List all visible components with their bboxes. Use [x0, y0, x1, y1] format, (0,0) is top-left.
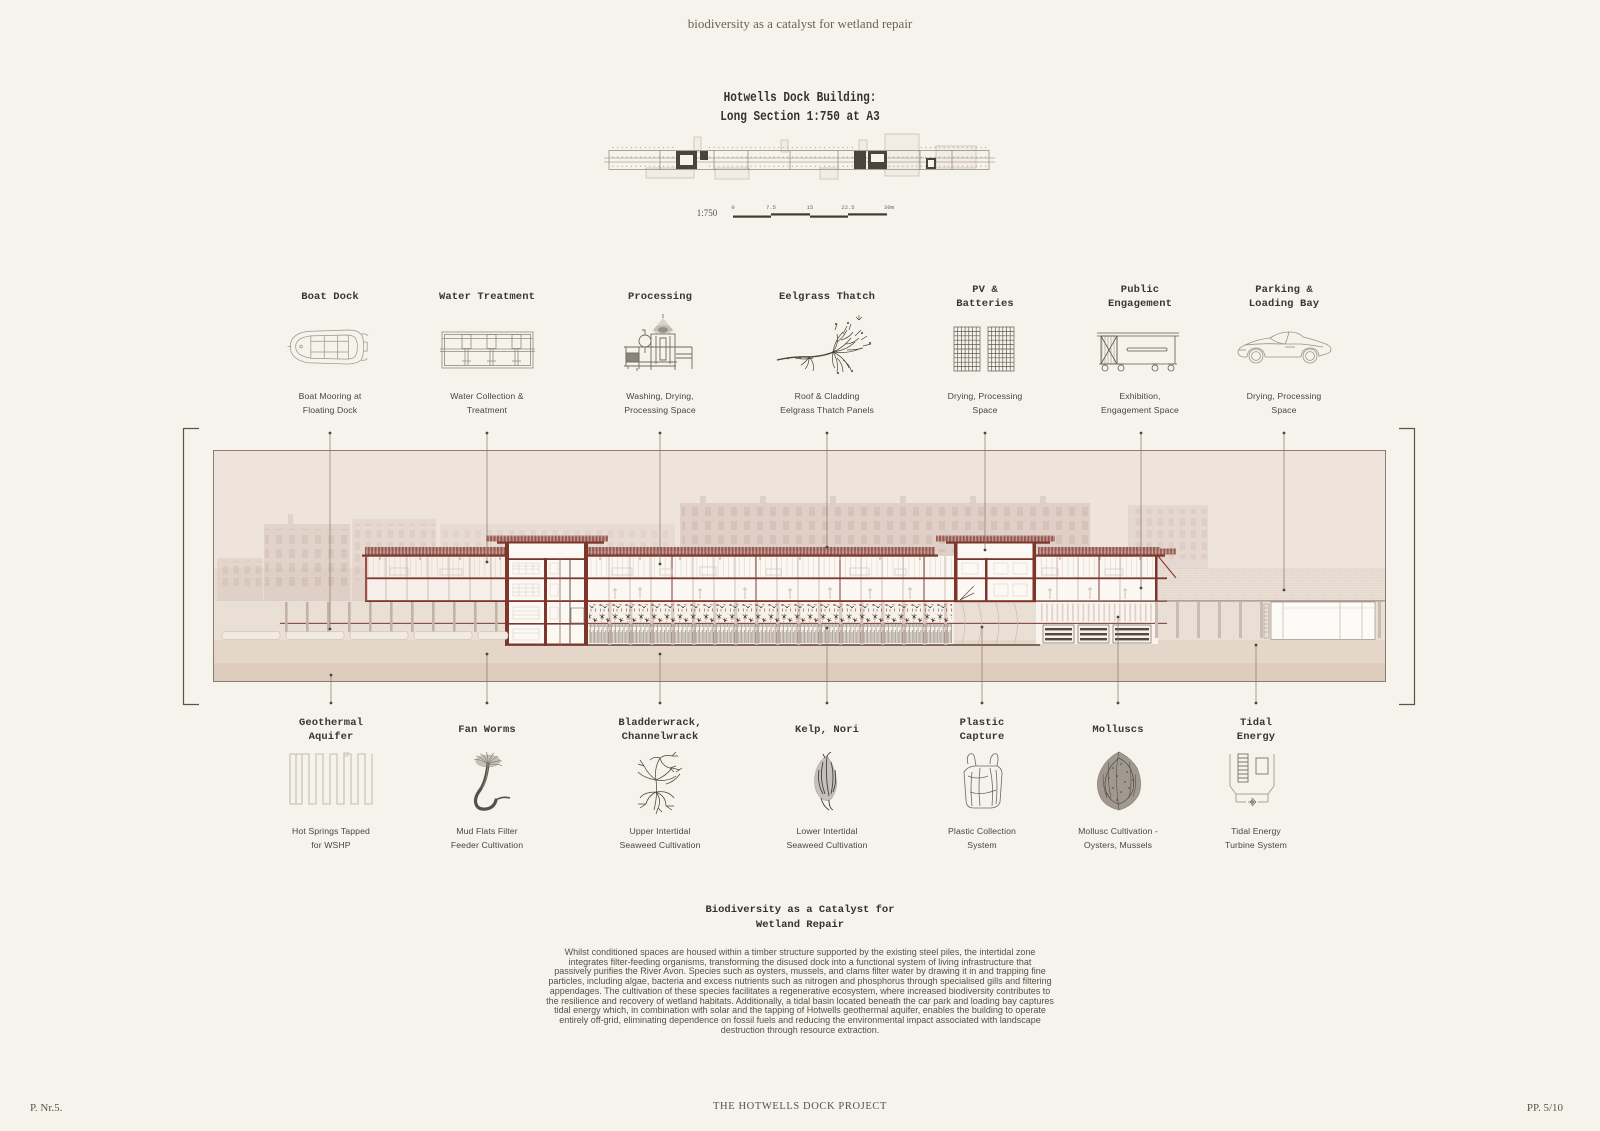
svg-text:7.5: 7.5	[766, 204, 776, 211]
svg-text:0: 0	[731, 204, 734, 211]
svg-text:22.5: 22.5	[841, 204, 854, 211]
svg-text:1:750: 1:750	[697, 208, 718, 218]
svg-text:30m: 30m	[884, 204, 895, 211]
svg-text:15: 15	[807, 204, 814, 211]
